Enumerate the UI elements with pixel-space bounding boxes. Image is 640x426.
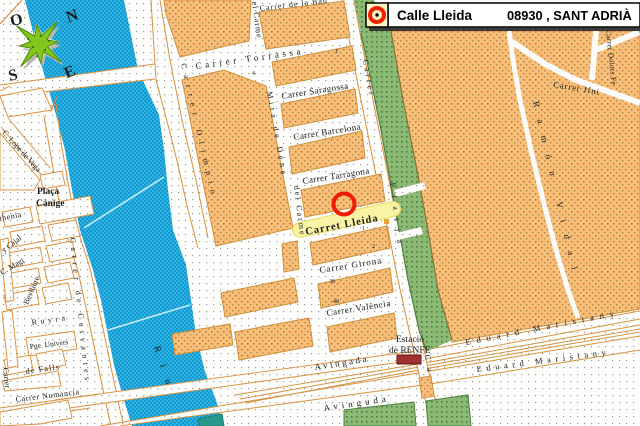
svg-text:Cànige: Cànige (36, 199, 65, 209)
svg-text:2: 2 (372, 244, 375, 250)
svg-text:1: 1 (335, 49, 338, 55)
svg-text:40: 40 (333, 299, 339, 305)
svg-text:Calle Lleida: Calle Lleida (397, 8, 473, 23)
svg-text:4: 4 (252, 71, 255, 77)
svg-text:1: 1 (362, 226, 365, 232)
svg-text:38: 38 (329, 279, 335, 285)
svg-text:Estació: Estació (396, 335, 424, 345)
svg-text:08930 , SANT ADRIÀ: 08930 , SANT ADRIÀ (507, 8, 632, 23)
svg-text:Plaça: Plaça (37, 187, 59, 197)
